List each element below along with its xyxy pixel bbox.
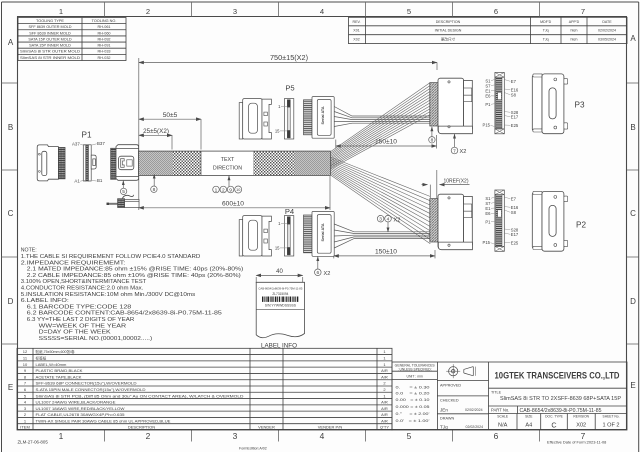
svg-text:C: C [551,421,556,430]
svg-text:DIRECTION: DIRECTION [213,165,242,171]
svg-text:7: 7 [453,148,456,154]
svg-text:DRAWN: DRAWN [440,416,454,420]
svg-text:7: 7 [581,7,585,16]
svg-text:TOOLING TYPE: TOOLING TYPE [36,19,64,23]
svg-text:4.CONDUCTOR RESISTANCE:2.0 o: 4.CONDUCTOR RESISTANCE:2.0 ohm Max. [21,286,143,292]
svg-text:1: 1 [59,7,63,16]
svg-text:TEXT: TEXT [221,157,235,163]
svg-text:5.INSULATION RESISTANCE:10M: 5.INSULATION RESISTANCE:10M ohm Min./300… [21,292,196,298]
svg-text:P15: P15 [483,240,491,245]
svg-text:A4: A4 [525,423,532,429]
svg-text:P2: P2 [576,221,586,230]
svg-text:10: 10 [236,188,240,192]
svg-text:TJq: TJq [543,29,549,33]
svg-text:2: 2 [146,7,150,16]
svg-text:SATA 15P OUTER MOLD: SATA 15P OUTER MOLD [28,37,72,41]
svg-text:1.THE CABLE SI REQUIREMENT: 1.THE CABLE SI REQUIREMENT FOLLOW PCIE4.… [21,254,201,260]
svg-text:P3: P3 [574,101,584,110]
svg-text:E25: E25 [511,123,519,128]
svg-text:A: A [630,34,636,43]
svg-text:5: 5 [407,7,411,16]
svg-text:03/05/2024: 03/05/2024 [598,38,616,42]
svg-text:P1: P1 [81,131,91,140]
svg-text:hteh: hteh [571,29,578,33]
svg-text:A1: A1 [74,179,80,184]
svg-text:10: 10 [23,362,28,367]
svg-text:SSSSS=SERIAL NO.(00001,00002.: SSSSS=SERIAL NO.(00001,00002.....) [39,336,153,342]
svg-text:hteh: hteh [571,38,578,42]
svg-text:6.3 YY=THE LAST 2 DIGITS: 6.3 YY=THE LAST 2 DIGITS OF YEAR [27,317,135,323]
svg-text:0.000 = ± 0.05: 0.000 = ± 0.05 [396,405,430,409]
svg-text:0.00 = ± 0.10: 0.00 = ± 0.10 [396,398,430,402]
svg-text:5: 5 [122,189,125,195]
svg-text:E17: E17 [511,232,519,237]
svg-text:P15: P15 [483,123,491,128]
svg-text:40: 40 [276,269,283,275]
svg-text:2: 2 [146,431,151,441]
svg-text:S8: S8 [511,210,517,215]
svg-text:SlimSAS 8i STR INNER MOLD: SlimSAS 8i STR INNER MOLD [20,56,80,60]
svg-text:0.0' = ± 1.00': 0.0' = ± 1.00' [396,419,431,423]
svg-text:2.IMPEDANCE REQUIREMEMT:: 2.IMPEDANCE REQUIREMEMT: [21,260,126,266]
svg-text:3.100% OPEN,SHORT&INTERMITANC: 3.100% OPEN,SHORT&INTERMITANCE TEST [21,279,147,285]
svg-text:6.1 BARCODE TYPE:CODE 128: 6.1 BARCODE TYPE:CODE 128 [27,304,132,310]
svg-text:VENDER: VENDER [258,425,275,430]
svg-text:A/R: A/R [381,412,388,417]
svg-text:E17: E17 [511,114,519,119]
svg-text:E7: E7 [511,79,517,84]
svg-text:10GTEK TRANSCEIVERS CO.,LTD: 10GTEK TRANSCEIVERS CO.,LTD [495,371,620,382]
svg-text:02/02/2024: 02/02/2024 [465,408,483,412]
svg-text:APP'D: APP'D [569,20,580,24]
svg-text:SATA 15P INNER MOLD: SATA 15P INNER MOLD [29,44,71,48]
svg-text:RH-092: RH-092 [97,37,110,41]
svg-text:UL1007 24AWG WIRE,BLACK/ORAN: UL1007 24AWG WIRE,BLACK/ORANGE [36,400,116,405]
svg-text:RH-032: RH-032 [97,56,110,60]
svg-text:B37: B37 [97,141,105,146]
svg-text:C: C [630,209,636,218]
svg-text:E6: E6 [485,93,491,98]
svg-text:P5: P5 [285,83,294,92]
svg-text:5: 5 [407,431,412,441]
svg-text:1: 1 [59,431,64,441]
svg-text:A/R: A/R [381,368,388,373]
svg-text:REV.: REV. [352,20,360,24]
svg-text:Serial ATA: Serial ATA [321,223,325,241]
svg-text:TJq: TJq [543,38,549,42]
svg-text:TJq: TJq [440,425,448,430]
svg-text:3: 3 [233,7,237,16]
svg-text:WW=WEEK OF THE YEAR: WW=WEEK OF THE YEAR [39,323,127,329]
svg-text:750±15(X2): 750±15(X2) [270,53,308,62]
svg-text:CHECKED: CHECKED [440,398,459,402]
svg-text:50±5: 50±5 [163,112,178,119]
svg-text:4: 4 [387,217,390,223]
svg-text:PLASTIC BRAID,BLACK: PLASTIC BRAID,BLACK [36,368,83,373]
svg-text:E7: E7 [511,196,517,201]
svg-text:VENDER P/N: VENDER P/N [318,425,343,430]
svg-text:E6: E6 [485,211,491,216]
svg-text:B: B [630,123,635,132]
svg-text:150±10: 150±10 [375,248,397,255]
svg-text:X2: X2 [394,217,401,223]
svg-text:SFF-8639 68P CONNECTOR(15u"): SFF-8639 68P CONNECTOR(15u"),W/OVERMOLD [36,381,137,386]
svg-text:S8: S8 [511,92,517,97]
svg-text:ACETATE TAPE,BLACK: ACETATE TAPE,BLACK [36,374,82,379]
svg-text:SlimSAS 8i STR OUTER MOLD: SlimSAS 8i STR OUTER MOLD [20,50,80,54]
svg-text:LABEL,W=40mm: LABEL,W=40mm [36,362,67,367]
svg-text:0.° = ± 2.00': 0.° = ± 2.00' [396,412,431,416]
svg-text:E25: E25 [511,240,519,245]
svg-text:15: 15 [275,246,280,251]
svg-text:1 OF 2: 1 OF 2 [602,423,619,429]
svg-text:CAB-8654/2x8639-8i-P0.75M-11-8: CAB-8654/2x8639-8i-P0.75M-11-85 [258,287,302,291]
svg-text:Effective Date of Form:2023: Effective Date of Form:2023-11-08 [547,440,606,445]
svg-text:DATE: DATE [602,20,612,24]
svg-text:9: 9 [229,187,232,193]
svg-text:RH-091: RH-091 [97,44,110,48]
svg-text:D=DAY OF THE WEEK: D=DAY OF THE WEEK [39,330,112,336]
svg-text:TWIN-AX SINGLE PAIR 30AWG: TWIN-AX SINGLE PAIR 30AWG CABLE 85 ohm U… [36,418,171,423]
svg-text:FLAT CABLE,UL2678 30AWGX4P,P: FLAT CABLE,UL2678 30AWGX4P,Ph=0.635 [36,412,126,417]
svg-text:X2: X2 [460,149,467,155]
svg-text:SFF 8639 INNER MOLD: SFF 8639 INNER MOLD [29,31,71,35]
svg-text:REVISION: REVISION [573,415,589,419]
svg-text:UL1007 18AWG WIRE,RED/BLACK/: UL1007 18AWG WIRE,RED/BLACK/YELLOW [36,406,125,411]
svg-text:P1: P1 [485,219,491,224]
svg-text:DESCRIPTION: DESCRIPTION [128,425,155,430]
svg-text:PART No.: PART No. [491,408,509,413]
svg-text:4: 4 [320,7,324,16]
svg-text:D: D [8,297,14,306]
svg-text:0.0 = ± 0.20: 0.0 = ± 0.20 [396,392,430,396]
svg-text:A/R: A/R [381,400,388,405]
svg-text:C: C [8,209,14,218]
svg-text:A/R: A/R [381,374,388,379]
svg-text:Serial ATA: Serial ATA [321,106,325,124]
svg-text:NOTE:: NOTE: [21,248,37,254]
svg-text:SlimSAS 8i STR TO 2XSFF-86: SlimSAS 8i STR TO 2XSFF-8639 68P+SATA 15… [500,396,622,402]
svg-text:ZLM-27-06-805: ZLM-27-06-805 [18,440,49,445]
svg-text:A/R: A/R [381,406,388,411]
svg-text:RH-061: RH-061 [97,25,110,29]
svg-text:150±10: 150±10 [375,139,397,146]
svg-text:A: A [8,38,14,47]
svg-text:E: E [8,383,13,392]
svg-text:B: B [8,123,13,132]
svg-text:X02: X02 [353,38,359,42]
svg-text:6: 6 [494,7,498,16]
svg-text:600±10: 600±10 [222,200,244,207]
svg-text:3: 3 [233,431,238,441]
svg-text:6: 6 [494,431,499,441]
svg-text:12: 12 [23,349,28,354]
svg-text:2.1 MATED IMPEDANCE:85 ohm: 2.1 MATED IMPEDANCE:85 ohm ±15% @RISE TI… [27,267,244,273]
svg-text:SlimSAS 8i STR PCB, (Diff: SlimSAS 8i STR PCB, (Diff 85 Ohm and 30u… [36,393,244,398]
svg-text:3: 3 [379,217,382,223]
svg-text:S-ATA 15PIN MALE CONNECTOR(: S-ATA 15PIN MALE CONNECTOR(15u"),W/OVERM… [36,387,146,392]
svg-text:2.2 CABLE IMPEDANCE:85 ohm: 2.2 CABLE IMPEDANCE:85 ohm ±10% @RISE TI… [27,273,241,279]
svg-text:6.2 BARCODE CONTENT:CAB-8654: 6.2 BARCODE CONTENT:CAB-8654/2x8639-8i-P… [27,311,222,317]
svg-text:SFF 8639 OUTER MOLD: SFF 8639 OUTER MOLD [28,25,71,29]
svg-text:RH-033: RH-033 [97,50,110,54]
svg-text:15: 15 [275,129,280,134]
svg-text:SIZE: SIZE [525,415,533,419]
svg-text:N/A: N/A [498,423,508,429]
svg-text:ZL7315094: ZL7315094 [272,292,288,296]
svg-text:B1: B1 [97,178,103,183]
svg-text:贴纸,75x50mm,600张/卷: 贴纸,75x50mm,600张/卷 [36,349,76,354]
svg-text:TITLE: TITLE [491,391,502,395]
svg-text:RH-060: RH-060 [97,31,110,35]
svg-text:X02: X02 [576,423,586,429]
svg-text:D: D [630,297,636,306]
svg-text:P4: P4 [285,207,294,216]
svg-text:Q'TY: Q'TY [380,425,389,430]
svg-text:标签纸: 标签纸 [36,356,47,361]
svg-text:FormEdition:A/02: FormEdition:A/02 [239,447,267,451]
svg-text:: UNLESS SPECIFIED:: : UNLESS SPECIFIED: [398,367,432,371]
svg-text:P1: P1 [485,102,491,107]
svg-text:A/R: A/R [381,418,388,423]
svg-text:DOC. TYPE: DOC. TYPE [545,415,564,419]
svg-text:6.LABEL INFO:: 6.LABEL INFO: [21,298,69,304]
svg-text:SCALE: SCALE [497,415,509,419]
svg-text:CAB-8654/2x8639-8i-P0.75M-11-8: CAB-8654/2x8639-8i-P0.75M-11-85 [520,408,602,414]
svg-text:2: 2 [222,187,225,193]
svg-text:APPROVED: APPROVED [440,383,461,387]
svg-text:X2: X2 [324,271,331,277]
svg-text:1: 1 [215,187,218,193]
svg-text:SHEET No.: SHEET No. [603,415,620,419]
svg-text:ITEM: ITEM [20,425,30,430]
svg-text:X01: X01 [353,29,359,33]
svg-text:10REF(X2): 10REF(X2) [443,178,468,184]
svg-text:TOOLING NO.: TOOLING NO. [92,19,117,23]
svg-text:INITIAL DESIGN: INITIAL DESIGN [435,29,462,33]
svg-text:8: 8 [153,187,156,193]
svg-text:更改尺寸: 更改尺寸 [441,37,456,42]
svg-text:A37: A37 [72,142,80,147]
svg-text:02/02/2024: 02/02/2024 [466,425,484,429]
svg-text:6: 6 [316,270,319,276]
svg-text:0. = ± 0.30: 0. = ± 0.30 [396,385,430,389]
svg-text:JEn: JEn [440,407,448,412]
svg-text:E: E [630,381,635,390]
svg-text:25±5(X2): 25±5(X2) [143,128,169,135]
svg-text:8: 8 [431,138,434,144]
svg-text:S/N:YYWWDSSSSS: S/N:YYWWDSSSSS [265,303,297,307]
svg-text:4: 4 [320,431,325,441]
svg-text:DESCRIPTION: DESCRIPTION [436,20,461,24]
svg-text:MDF'D: MDF'D [540,20,551,24]
svg-text:UNIT : mm: UNIT : mm [407,374,423,378]
svg-text:02/02/2024: 02/02/2024 [598,29,616,33]
